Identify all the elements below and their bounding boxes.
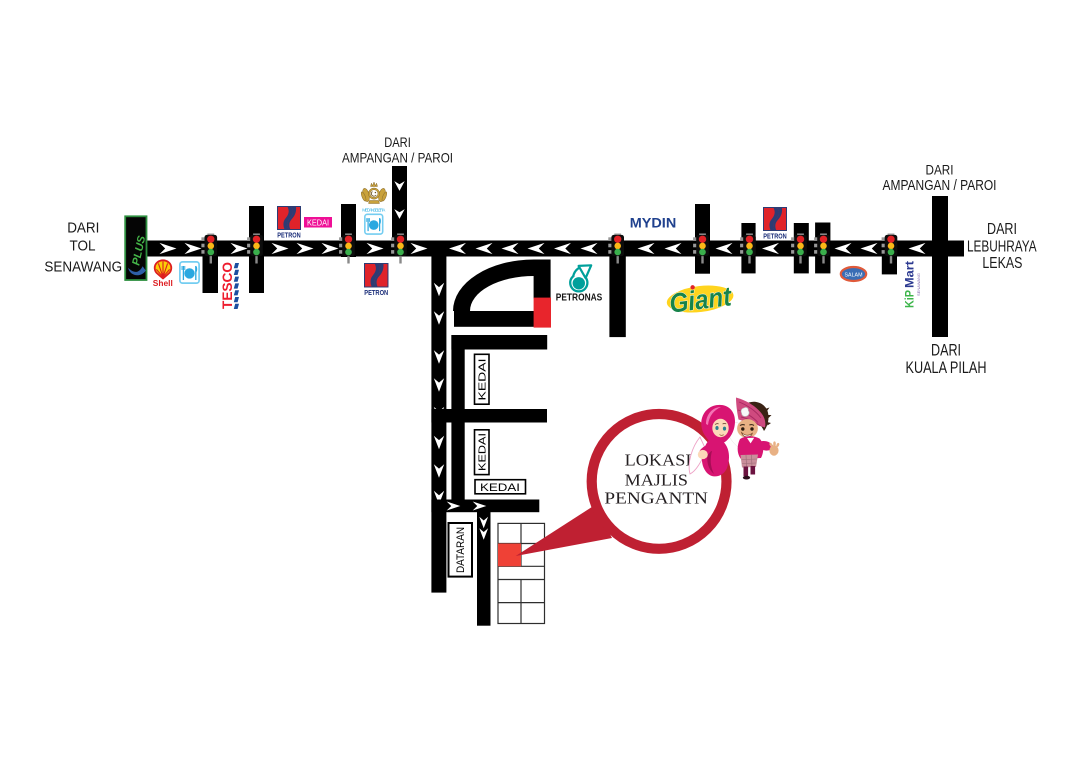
svg-text:KEDAI: KEDAI	[477, 359, 489, 401]
svg-text:KEDAI: KEDAI	[307, 218, 329, 227]
svg-text:AMPANGAN / PAROI: AMPANGAN / PAROI	[342, 149, 453, 165]
svg-text:MEDAN SELERA: MEDAN SELERA	[362, 208, 386, 213]
svg-text:Mart: Mart	[903, 261, 917, 288]
svg-text:PENGANTN: PENGANTN	[604, 489, 708, 508]
svg-text:SENAWANG: SENAWANG	[916, 273, 921, 296]
svg-text:KEDAI: KEDAI	[477, 433, 489, 471]
svg-text:KUALA PILAH: KUALA PILAH	[906, 359, 987, 377]
svg-text:TOL: TOL	[70, 238, 96, 254]
svg-text:Shell: Shell	[153, 279, 173, 288]
svg-text:SENAWANG: SENAWANG	[44, 260, 122, 276]
svg-text:SALAM: SALAM	[845, 272, 863, 278]
svg-text:DATARAN: DATARAN	[455, 527, 467, 573]
svg-text:KEDAI: KEDAI	[480, 482, 520, 494]
svg-text:DARI: DARI	[987, 221, 1017, 238]
svg-text:LOKASI: LOKASI	[625, 451, 692, 470]
svg-text:DARI: DARI	[67, 220, 99, 236]
svg-text:DARI: DARI	[931, 342, 961, 360]
svg-text:DARI: DARI	[926, 161, 954, 177]
svg-text:DARI: DARI	[384, 135, 411, 150]
svg-text:TESCO: TESCO	[220, 262, 235, 309]
svg-text:LEBUHRAYA: LEBUHRAYA	[967, 239, 1037, 256]
svg-text:MYDIN: MYDIN	[630, 215, 677, 231]
svg-text:MAJLIS: MAJLIS	[625, 471, 688, 490]
svg-text:AMPANGAN / PAROI: AMPANGAN / PAROI	[883, 178, 997, 194]
svg-text:LEKAS: LEKAS	[982, 255, 1022, 272]
svg-text:KiP: KiP	[903, 290, 917, 308]
svg-text:PETRONAS: PETRONAS	[556, 292, 603, 303]
